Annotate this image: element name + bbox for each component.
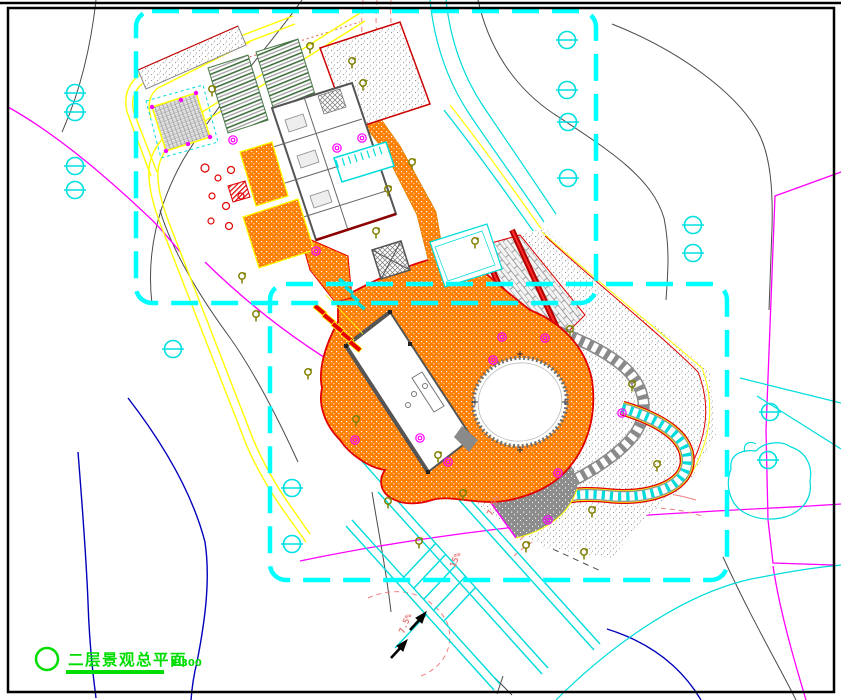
shrub-icon [229, 136, 237, 144]
survey-marker-icon [64, 158, 86, 175]
survey-marker-icon [281, 536, 303, 553]
survey-marker-icon [682, 217, 704, 234]
tree-icon [253, 311, 260, 322]
rockery [201, 164, 244, 230]
cad-site-plan-sheet: 7.5%15%7.5% 二层景观总平面 1:300 [0, 0, 841, 700]
tree-icon [305, 369, 312, 380]
site-plan-canvas: 7.5%15%7.5% 二层景观总平面 1:300 [0, 0, 841, 700]
survey-marker-icon [281, 480, 303, 497]
survey-marker-icon [757, 452, 779, 469]
survey-marker-icon [557, 170, 579, 187]
title-block: 二层景观总平面 1:300 [36, 648, 202, 672]
survey-marker-icon [556, 32, 578, 49]
tree-icon [239, 273, 246, 284]
survey-marker-icon [759, 404, 781, 421]
survey-marker-icon [64, 182, 86, 199]
survey-marker-icon [64, 104, 86, 121]
slope-label: 7.5% [398, 612, 415, 636]
title-bubble-icon [36, 648, 58, 670]
planting-bed [208, 55, 268, 133]
survey-marker-icon [682, 245, 704, 262]
tree-icon [373, 228, 380, 239]
survey-marker-icon [556, 82, 578, 99]
slope-label: 15% [449, 550, 464, 569]
survey-marker-icon [162, 341, 184, 358]
tree-icon [209, 86, 216, 97]
tree-icon [523, 542, 530, 553]
orange-court [243, 199, 314, 268]
drawing-scale: 1:300 [170, 658, 202, 669]
